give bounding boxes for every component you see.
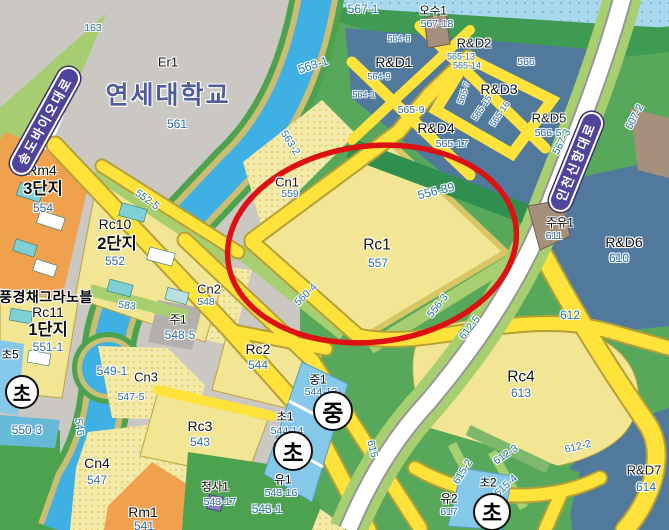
zone-rnd2: R&D2 <box>457 37 492 50</box>
parcel-565-7: 565-7 <box>456 81 472 106</box>
fac-juyu1: 주유1 <box>546 218 574 230</box>
school-cho1: 초1 <box>277 412 294 424</box>
parcel-612: 612 <box>560 309 580 321</box>
parcel-547-5: 547-5 <box>118 392 145 403</box>
parcel-611: 611 <box>546 231 563 242</box>
parcel-615-2: 615-2 <box>451 458 474 486</box>
road-615: 615 <box>365 439 379 459</box>
parcel-565-14: 565-14 <box>453 62 481 71</box>
parcel-564-9: 564-9 <box>367 73 390 82</box>
parcel-567-18: 567-18 <box>421 19 454 30</box>
map-viewport[interactable]: Er1연세대학교561163567-1오수1567-18R&D1R&D2R&D3… <box>0 0 669 530</box>
parcel-559: 559 <box>281 189 299 200</box>
parcel-543: 543 <box>190 436 210 448</box>
zone-rm1: Rm1 <box>128 505 158 519</box>
parcel-610: 610 <box>609 252 629 264</box>
parcel-613: 613 <box>511 387 531 399</box>
parcel-552: 552 <box>105 255 125 267</box>
parcel-548: 548 <box>197 297 215 308</box>
zone-rc10: Rc10 <box>99 217 132 231</box>
parcel-564-1: 564-1 <box>352 91 375 100</box>
parcel-543-17: 543-17 <box>204 497 237 508</box>
parcel-566: 566 <box>517 57 535 68</box>
parcel-567-1: 567-1 <box>348 3 379 15</box>
complex-1danji: 1단지 <box>28 322 68 339</box>
school-badge-middle: 중 <box>313 391 353 431</box>
zone-rnd7: R&D7 <box>627 464 662 477</box>
parcel-612-5: 612-5 <box>458 314 483 342</box>
zone-cn4: Cn4 <box>84 456 110 470</box>
parcel-547: 547 <box>87 474 107 486</box>
zone-rc11: Rc11 <box>32 305 64 319</box>
parcel-561: 561 <box>167 118 187 130</box>
parcel-556-3: 556-3 <box>426 292 451 320</box>
parcel-541: 541 <box>134 520 154 530</box>
parcel-565-16: 565-16 <box>488 100 511 128</box>
fac-cheongsa1: 청사1 <box>201 482 229 494</box>
parcel-548-5: 548-5 <box>165 329 196 341</box>
school-cho2: 초2 <box>480 478 497 490</box>
school-yu2: 유2 <box>441 494 458 506</box>
fac-osu1: 오수1 <box>419 6 447 18</box>
zone-rc1: Rc1 <box>363 237 391 253</box>
parcel-546: 546 <box>73 418 86 437</box>
map-labels: Er1연세대학교561163567-1오수1567-18R&D1R&D2R&D3… <box>0 0 669 530</box>
complex-3danji: 3단지 <box>23 181 63 198</box>
school-badge-elementary-left: 초 <box>5 375 39 409</box>
zone-rnd5: R&D5 <box>532 112 567 125</box>
parcel-550-3: 550-3 <box>12 424 43 436</box>
parcel-549-1: 549-1 <box>97 365 128 377</box>
parcel-614: 614 <box>636 481 656 493</box>
parcel-612-3: 612-3 <box>492 443 520 467</box>
zone-rc4: Rc4 <box>507 369 535 385</box>
parcel-564-8: 564-8 <box>387 35 410 44</box>
parcel-543-1: 543-1 <box>252 503 283 515</box>
school-badge-elementary-southeast: 초 <box>473 493 511 530</box>
parcel-563-1: 563-1 <box>297 55 330 76</box>
school-cho5: 초5 <box>2 350 19 362</box>
apt-name: 풍경채그라노블 <box>0 290 93 304</box>
parcel-563-2: 563-2 <box>278 129 301 157</box>
school-badge-elementary-center: 초 <box>273 431 313 471</box>
fac-ju1: 주1 <box>170 315 187 327</box>
parcel-560-4: 560-4 <box>293 282 320 308</box>
parcel-607-2: 607-2 <box>624 103 646 132</box>
parcel-163: 163 <box>84 23 102 34</box>
zone-rc2: Rc2 <box>246 342 271 356</box>
parcel-544: 544 <box>248 359 268 371</box>
university-name: 연세대학교 <box>105 84 230 109</box>
parcel-554: 554 <box>33 202 53 214</box>
zone-cn3: Cn3 <box>134 371 158 384</box>
zone-rnd4: R&D4 <box>417 121 454 135</box>
parcel-557: 557 <box>368 257 388 269</box>
parcel-617: 617 <box>440 507 458 518</box>
parcel-543-16: 543-16 <box>265 488 298 499</box>
parcel-556-39: 556-39 <box>416 181 455 202</box>
parcel-612-2: 612-2 <box>564 439 593 456</box>
parcel-551-1: 551-1 <box>33 341 64 353</box>
zone-rnd6: R&D6 <box>605 235 642 249</box>
zone-cn1: Cn1 <box>275 176 299 189</box>
school-yu1: 유1 <box>275 475 292 487</box>
parcel-565-9: 565-9 <box>398 105 425 116</box>
parcel-565-17: 565-17 <box>436 139 469 150</box>
parcel-552-5: 552-5 <box>133 188 161 212</box>
zone-er1: Er1 <box>158 56 178 69</box>
parcel-583: 583 <box>118 300 137 313</box>
complex-2danji: 2단지 <box>97 236 137 253</box>
zone-rnd1: R&D1 <box>375 55 412 69</box>
zone-rc3: Rc3 <box>188 419 213 433</box>
zone-cn2: Cn2 <box>197 283 221 296</box>
